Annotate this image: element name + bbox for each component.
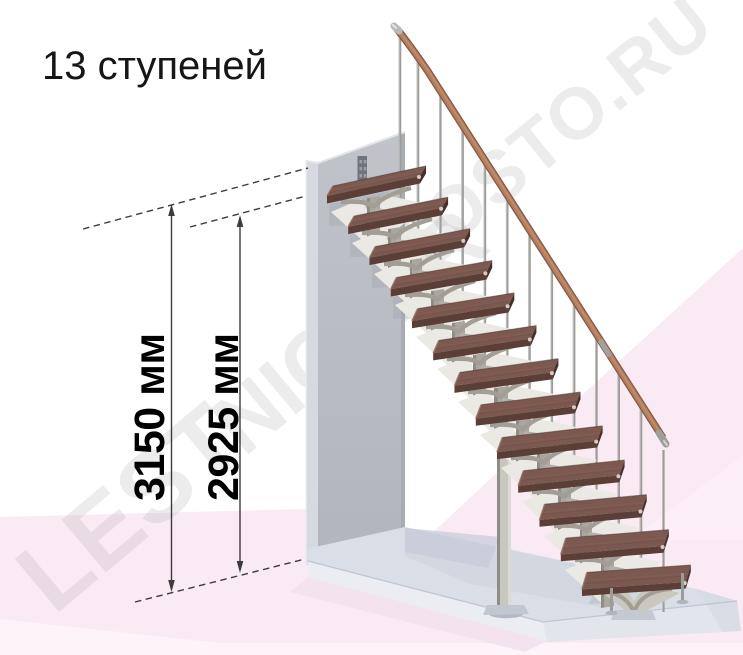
svg-text:2925 мм: 2925 мм xyxy=(200,333,248,501)
svg-text:3150 мм: 3150 мм xyxy=(126,333,174,501)
svg-text:13 ступеней: 13 ступеней xyxy=(42,44,267,88)
